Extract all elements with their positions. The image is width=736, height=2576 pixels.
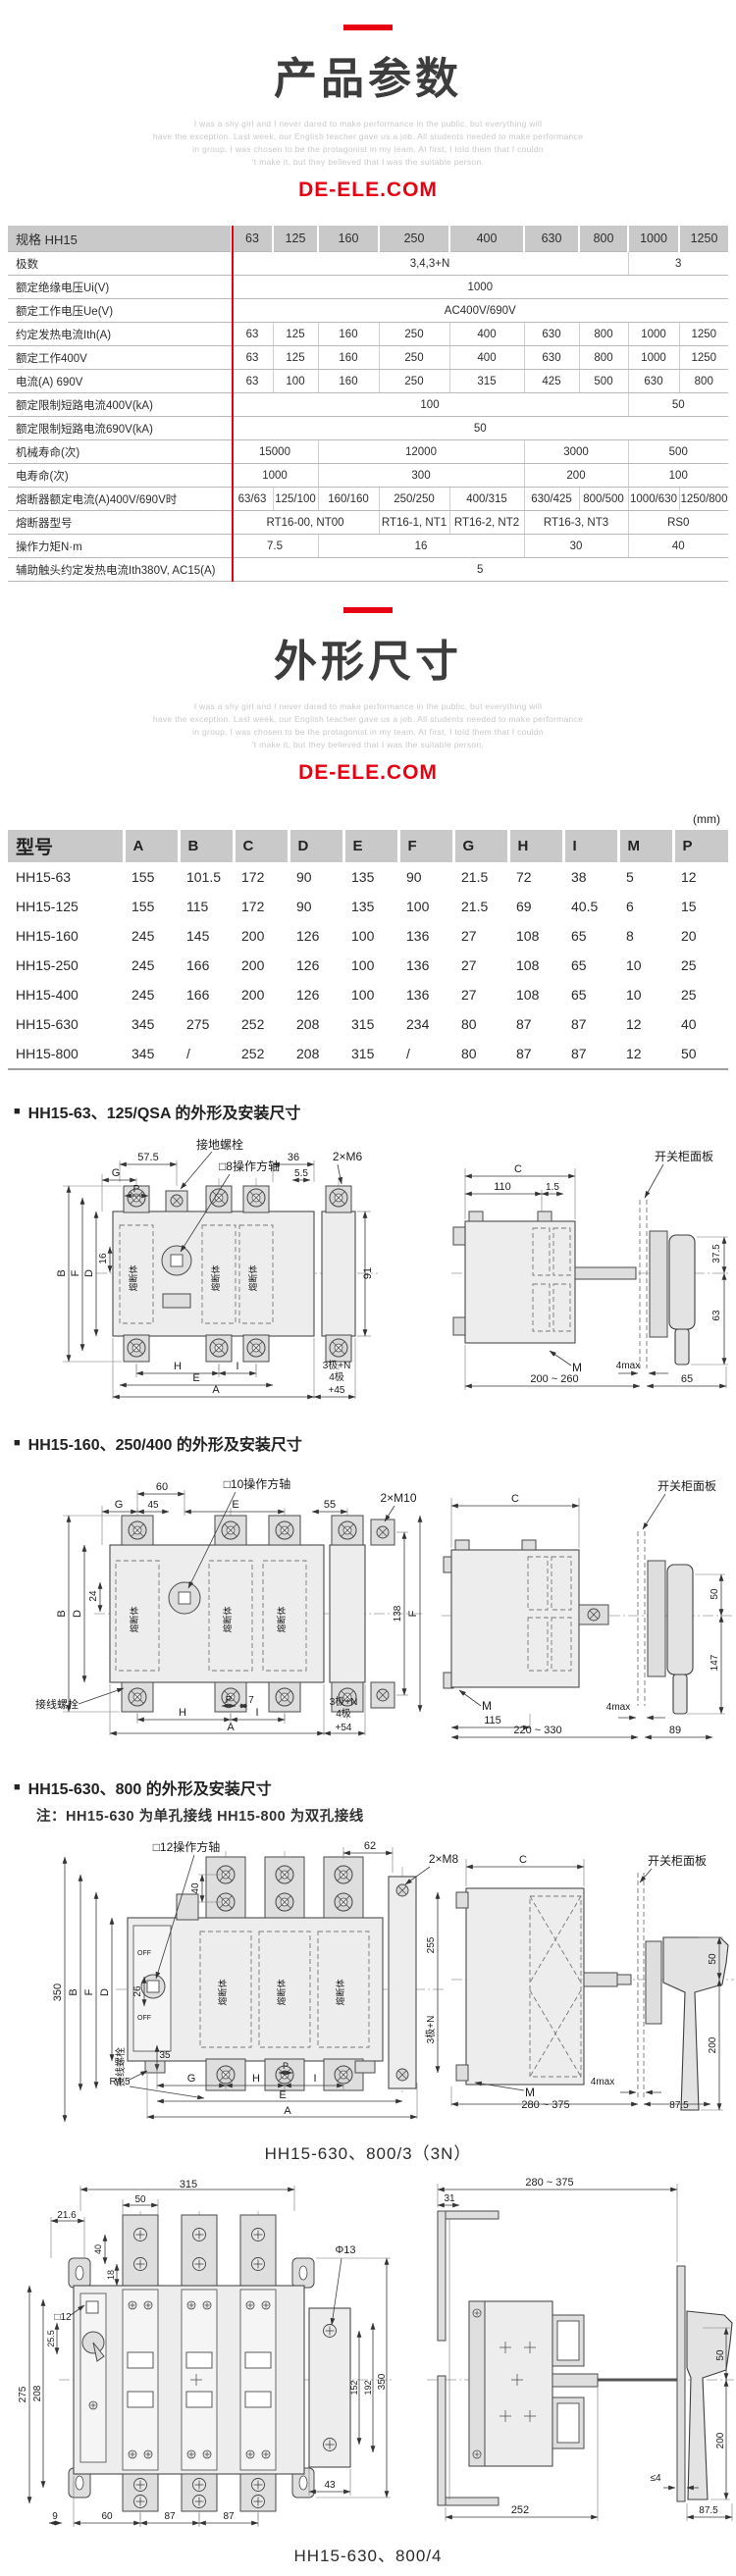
dim-value-cell: 10 [618,951,673,980]
dim-column-header: M [618,830,673,862]
dim-model-cell: HH15-250 [8,951,124,980]
dim-value-cell: 80 [453,1009,508,1039]
dim-value-cell: 126 [289,951,343,980]
dimension-label: E [192,1372,199,1384]
spec-value-cell: 200 [524,464,628,488]
spec-value-cell: 40 [628,535,728,558]
dim-value-cell: 20 [673,921,728,951]
dim-value-cell: 252 [234,1009,289,1039]
dim-value-cell: 90 [289,862,343,892]
dimension-label: F [70,1269,81,1276]
dimension-label: 62 [364,1840,376,1852]
dimension-label: 50 [134,2194,146,2205]
dimension-label: 接地螺栓 [196,1137,243,1152]
dim-value-cell: 69 [508,892,563,921]
drawing-title-1: HH15-63、125/QSA 的外形及安装尺寸 [28,1100,301,1123]
dim-value-cell: 100 [343,980,398,1009]
spec-value-cell: 1250/800 [679,488,728,511]
watermark-line: have the exception. Last week, our Engli… [0,130,736,143]
dim-value-cell: 10 [618,980,673,1009]
dim-column-header: B [179,830,234,862]
dim-value-cell: 21.5 [453,892,508,921]
dim-value-cell: 100 [343,921,398,951]
dimension-label: 45 [147,1500,159,1511]
spec-table-row: 电流(A) 690V63100160250315425500630800 [8,370,728,393]
dimension-label: H [252,2073,260,2085]
spec-value-cell: 425 [524,370,579,393]
dimension-label: D [99,1988,111,1996]
spec-value-cell: 800 [679,370,728,393]
spec-table-row: 操作力矩N·m7.5163040 [8,535,728,558]
dimension-label: 138 [393,1605,403,1622]
dimension-label: 接线螺栓 [35,1697,79,1711]
red-divider-line [232,226,234,582]
spec-value-cell: 1000 [232,464,318,488]
dim-value-cell: 136 [398,951,453,980]
dimension-label: 35 [159,2050,171,2061]
dim-value-cell: 200 [234,921,289,951]
dimension-label: 开关柜面板 [655,1150,713,1163]
dim-value-cell: 200 [234,980,289,1009]
spec-value-cell: 15000 [232,440,318,464]
spec-value-cell: 1000 [628,346,679,370]
dimension-label: F [407,1610,419,1617]
dim-value-cell: 27 [453,980,508,1009]
spec-value-cell: 16 [318,535,524,558]
dimension-label: 280 ~ 375 [521,2099,569,2111]
dimension-label: 315 [180,2179,197,2190]
spec-value-cell: 5 [232,558,728,582]
spec-table-row: 额定工作400V6312516025040063080010001250 [8,346,728,370]
dim-value-cell: 155 [124,862,179,892]
spec-value-cell: 250 [379,346,449,370]
dim-column-header: G [453,830,508,862]
bullet-icon: ■ [14,1438,21,1449]
dim-value-cell: 234 [398,1009,453,1039]
dim-model-cell: HH15-630 [8,1009,124,1039]
dimension-table: 型号ABCDEFGHIMP HH15-63155101.517290135902… [8,830,728,1070]
dimension-label: 7 [248,1695,254,1706]
dim-value-cell: 25 [673,980,728,1009]
dimension-label: C [519,1854,527,1866]
dimension-label: 192 [363,2380,373,2395]
spec-row-label: 规格 HH15 [8,226,232,252]
dimension-label: 开关柜面板 [657,1479,716,1493]
bullet-icon: ■ [14,1782,21,1793]
dimension-label: 350 [52,1984,64,2001]
dimension-label: E [279,2089,286,2101]
dimension-label: OFF [137,1950,151,1957]
dimension-label: 87.5 [699,2505,718,2516]
dim-value-cell: 65 [563,951,618,980]
dimension-label: 275 [18,2386,28,2402]
dimension-label: 87 [223,2511,235,2522]
table-row: HH15-63155101.5172901359021.57238512 [8,862,728,892]
dimension-label: 200 [715,2432,726,2448]
dimension-label: 21.6 [57,2210,77,2221]
dim-value-cell: 87 [508,1009,563,1039]
spec-value-cell: 1000 [628,323,679,346]
dimension-label: M [525,2086,535,2099]
spec-table-row: 额定绝缘电压Ui(V)1000 [8,276,728,299]
dim-value-cell: 25 [673,951,728,980]
dim-column-header: P [673,830,728,862]
dim-value-cell: 87 [563,1009,618,1039]
spec-value-cell: 63 [232,346,273,370]
spec-value-cell: 30 [524,535,628,558]
dim-column-header: H [508,830,563,862]
dimension-label: 147 [710,1654,720,1671]
dimension-label: +54 [336,1723,352,1733]
dim-value-cell: 90 [398,862,453,892]
dimension-label: 4极 [336,1707,351,1720]
watermark-text: I was a shy girl and I never dared to ma… [0,118,736,169]
spec-value-cell: 630 [524,226,579,252]
spec-value-cell: 250 [379,370,449,393]
dimension-label: 50 [715,2349,726,2361]
spec-value-cell: 160 [318,370,379,393]
dim-value-cell: 108 [508,921,563,951]
spec-row-label: 熔断器型号 [8,511,232,535]
spec-value-cell: 125 [273,346,318,370]
spec-row-label: 额定工作400V [8,346,232,370]
dim-value-cell: 172 [234,862,289,892]
dim-value-cell: 172 [234,892,289,921]
spec-row-label: 额定限制短路电流400V(kA) [8,393,232,417]
dim-value-cell: 100 [343,951,398,980]
dimension-label: 200 [708,2036,718,2053]
drawing-hh15-630-800-4: 3155021.6401827520825.5□12Φ1315219235043… [0,2176,736,2534]
spec-value-cell: 63 [232,323,273,346]
spec-value-cell: 160 [318,226,379,252]
spec-row-label: 额定工作电压Ue(V) [8,299,232,323]
bullet-icon: ■ [14,1107,21,1117]
dimension-label: C [511,1493,519,1505]
spec-row-label: 极数 [8,252,232,276]
dim-column-header: C [234,830,289,862]
spec-value-cell: 400 [449,346,524,370]
drawing-hh15-160-250-400: 60G45□10操作方轴E552×M10BD24138F熔断体熔断体熔断体接线螺… [0,1467,736,1746]
drawing-title-3: HH15-630、800 的外形及安装尺寸 [28,1776,272,1799]
dimension-label: 18 [106,2270,116,2280]
drawing-hh15-630-800-3n: □12操作方轴622×M840350BFD26接线螺栓35OFFOFF熔断体熔断… [0,1837,736,2132]
spec-value-cell: 300 [318,464,524,488]
spec-value-cell: 315 [449,370,524,393]
dimension-label: A [284,2105,291,2117]
spec-value-cell: 800 [579,346,628,370]
dim-value-cell: 108 [508,951,563,980]
dim-value-cell: 21.5 [453,862,508,892]
spec-value-cell: 160/160 [318,488,379,511]
spec-table-row: 规格 HH156312516025040063080010001250 [8,226,728,252]
spec-value-cell: 250/250 [379,488,449,511]
dim-value-cell: 315 [343,1009,398,1039]
dim-value-cell: 100 [398,892,453,921]
dim-value-cell: 345 [124,1009,179,1039]
dim-value-cell: / [179,1039,234,1069]
front-view [96,1178,378,1370]
spec-value-cell: AC400V/690V [232,299,728,323]
section-divider-bar [343,25,393,30]
operating-handle [669,1235,695,1329]
dimension-label: G [115,1499,124,1511]
spec-value-cell: 3,4,3+N [232,252,628,276]
drawing-title-2: HH15-160、250/400 的外形及安装尺寸 [28,1431,302,1455]
dimension-label: B [68,1988,79,1995]
spec-value-cell: 50 [628,393,728,417]
watermark-line: I was a shy girl and I never dared to ma… [0,700,736,713]
dimension-label: H [174,1361,182,1372]
dimension-label: P [226,1695,233,1706]
dim-value-cell: 208 [289,1009,343,1039]
dim-value-cell: 6 [618,892,673,921]
dim-value-cell: 136 [398,921,453,951]
dimension-label: D [83,1269,95,1277]
dimension-label: ≤4 [650,2473,660,2484]
dim-model-cell: HH15-125 [8,892,124,921]
dim-value-cell: 275 [179,1009,234,1039]
drive-shaft [575,1267,636,1279]
dim-value-cell: 155 [124,892,179,921]
dim-value-cell: / [398,1039,453,1069]
dimension-label: 200 ~ 260 [530,1373,578,1385]
watermark-line: have the exception. Last week, our Engli… [0,713,736,726]
dimension-label: 50 [710,1588,720,1600]
dimension-label: B [56,1610,68,1617]
dimension-label: 40 [190,1882,201,1894]
dimension-label: 4max [591,2077,614,2087]
dim-value-cell: 40.5 [563,892,618,921]
spec-value-cell: 630 [524,323,579,346]
spec-value-cell: 125/100 [273,488,318,511]
dimension-label: 熔断体 [210,1264,221,1291]
dim-value-cell: 252 [234,1039,289,1069]
spec-value-cell: 1250 [679,323,728,346]
dimension-label: 熔断体 [276,1606,287,1632]
dimension-label: 4max [616,1361,640,1371]
spec-value-cell: 125 [273,226,318,252]
table-row: HH15-25024516620012610013627108651025 [8,951,728,980]
spec-value-cell: 800/500 [579,488,628,511]
drawing-caption-3n: HH15-630、800/3（3N） [0,2139,736,2164]
dim-value-cell: 315 [343,1039,398,1069]
dim-value-cell: 115 [179,892,234,921]
spec-table-wrap: 规格 HH156312516025040063080010001250极数3,4… [8,226,728,582]
spec-table-row: 额定限制短路电流690V(kA)50 [8,417,728,440]
dimension-label: Φ13 [335,2244,355,2256]
dim-value-cell: 87 [563,1039,618,1069]
dim-value-cell: 145 [179,921,234,951]
dimension-label: 熔断体 [247,1264,258,1291]
watermark-line: I was a shy girl and I never dared to ma… [0,118,736,130]
spec-value-cell: 1250 [679,226,728,252]
dimension-label: 16 [98,1253,109,1264]
dimension-label: G [187,2073,196,2085]
dimension-label: 熔断体 [276,1979,287,2005]
section-outline-dimensions: 外形尺寸 I was a shy girl and I never dared … [0,607,736,2566]
spec-value-cell: RS0 [628,511,728,535]
dim-value-cell: 136 [398,980,453,1009]
drawing-caption-4: HH15-630、800/4 [0,2542,736,2566]
side-view [427,2211,734,2505]
dimension-label: H [179,1707,186,1719]
spec-value-cell: 1000 [628,226,679,252]
spec-row-label: 熔断器额定电流(A)400V/690V时 [8,488,232,511]
dimension-label: M [572,1361,582,1374]
dim-value-cell: 40 [673,1009,728,1039]
dim-value-cell: 126 [289,980,343,1009]
dim-value-cell: 15 [673,892,728,921]
side-view [451,1873,734,2110]
dim-value-cell: 345 [124,1039,179,1069]
spec-value-cell: RT16-00, NT00 [232,511,379,535]
dimension-label: 2×M10 [380,1491,416,1505]
spec-table-row: 额定工作电压Ue(V)AC400V/690V [8,299,728,323]
dimension-label: 5.5 [294,1168,308,1179]
spec-table-row: 极数3,4,3+N3 [8,252,728,276]
dimension-label: 开关柜面板 [648,1854,707,1868]
dimension-label: 26 [132,1985,143,1997]
spec-value-cell: 100 [273,370,318,393]
dim-column-header: E [343,830,398,862]
spec-value-cell: 250 [379,226,449,252]
dimension-label: 熔断体 [335,1979,345,2005]
spec-value-cell: 1250 [679,346,728,370]
dimension-label: 4max [606,1702,630,1713]
drawing-heading-1: ■ HH15-63、125/QSA 的外形及安装尺寸 [14,1100,736,1123]
dimension-label: 熔断体 [217,1979,228,2005]
dimension-label: □12操作方轴 [153,1839,221,1854]
spec-value-cell: 630 [524,346,579,370]
dim-value-cell: 101.5 [179,862,234,892]
dimension-label: 2×M8 [429,1852,459,1866]
dim-column-header: F [398,830,453,862]
dimension-label: 152 [349,2380,359,2395]
dimension-label: 熔断体 [128,1264,138,1291]
cabinet-panel [677,2266,685,2501]
dimension-label: G [112,1167,121,1179]
dim-value-cell: 5 [618,862,673,892]
dim-column-header: D [289,830,343,862]
spec-table-row: 熔断器额定电流(A)400V/690V时63/63125/100160/1602… [8,488,728,511]
spec-value-cell: 160 [318,346,379,370]
dimension-label: I [313,2073,316,2085]
dimension-label: 255 [426,1936,437,1953]
dim-value-cell: 38 [563,862,618,892]
spec-value-cell: 400 [449,323,524,346]
dim-column-header: 型号 [8,830,124,862]
spec-row-label: 辅助触头约定发热电流Ith380V, AC15(A) [8,558,232,582]
dimension-label: 208 [32,2385,43,2401]
watermark-line: 't make it, but they believed that I was… [0,739,736,751]
product-spec-page: 产品参数 I was a shy girl and I never dared … [0,0,736,2576]
dimension-label: A [212,1384,220,1396]
dimension-label: 60 [101,2511,113,2522]
dim-value-cell: 65 [563,980,618,1009]
dim-value-cell: 200 [234,951,289,980]
drawing-heading-3: ■ HH15-630、800 的外形及安装尺寸 [14,1776,736,1799]
dimension-label: 91 [362,1267,374,1279]
spec-value-cell: 800 [579,226,628,252]
spec-value-cell: 400/315 [449,488,524,511]
dimension-label: I [236,1361,238,1372]
table-row: HH15-800345/252208315/8087871250 [8,1039,728,1069]
dimension-label: 熔断体 [129,1606,139,1632]
spec-row-label: 额定绝缘电压Ui(V) [8,276,232,299]
spec-value-cell: 63/63 [232,488,273,511]
dimension-label: 87 [164,2511,176,2522]
spec-value-cell: 100 [232,393,628,417]
section-divider-bar [343,607,393,613]
watermark-line: in group. I was chosen to be the protago… [0,143,736,156]
dim-value-cell: 166 [179,980,234,1009]
spec-row-label: 操作力矩N·m [8,535,232,558]
dim-value-cell: 135 [343,862,398,892]
front-view [94,1508,422,1720]
dim-value-cell: 27 [453,921,508,951]
dim-model-cell: HH15-160 [8,921,124,951]
table-row: HH15-1251551151729013510021.56940.5615 [8,892,728,921]
spec-value-cell: RT16-2, NT2 [449,511,524,535]
dim-value-cell: 87 [508,1039,563,1069]
dimension-label: 350 [377,2373,388,2390]
unit-note: (mm) [0,812,720,826]
dimension-label: 110 [494,1181,511,1193]
dimension-label: 50 [708,1953,718,1965]
spec-table-row: 电寿命(次)1000300200100 [8,464,728,488]
spec-table-row: 约定发热电流Ith(A)6312516025040063080010001250 [8,323,728,346]
dim-value-cell: 126 [289,921,343,951]
spec-row-label: 机械寿命(次) [8,440,232,464]
dim-value-cell: 166 [179,951,234,980]
dimension-label: 熔断体 [222,1606,233,1632]
dimension-label: E [232,1499,238,1511]
spec-value-cell: 7.5 [232,535,318,558]
drawing-heading-2: ■ HH15-160、250/400 的外形及安装尺寸 [14,1431,736,1455]
dim-value-cell: 245 [124,921,179,951]
dim-header-row: 型号ABCDEFGHIMP [8,830,728,862]
dim-model-cell: HH15-400 [8,980,124,1009]
spec-table-row: 额定限制短路电流400V(kA)10050 [8,393,728,417]
dimension-label: 252 [511,2504,529,2516]
drive-shaft [584,1973,617,1986]
spec-value-cell: 63 [232,370,273,393]
drawing-note: 注：HH15-630 为单孔接线 HH15-800 为双孔接线 [36,1805,736,1826]
spec-value-cell: RT16-3, NT3 [524,511,628,535]
spec-table-row: 熔断器型号RT16-00, NT00RT16-1, NT1RT16-2, NT2… [8,511,728,535]
table-row: HH15-6303452752522083152348087871240 [8,1009,728,1039]
dimension-label: 89 [669,1725,681,1736]
dim-value-cell: 245 [124,980,179,1009]
dim-value-cell: 8 [618,921,673,951]
section-product-parameters: 产品参数 I was a shy girl and I never dared … [0,25,736,582]
dimension-label: 36 [288,1152,299,1163]
spec-value-cell: 1000/630 [628,488,679,511]
dimension-label: C [514,1163,522,1175]
dimension-label: P [283,2061,289,2071]
dimension-label: +45 [329,1385,345,1396]
dimension-label: 31 [444,2193,455,2204]
dim-column-header: A [124,830,179,862]
spec-value-cell: 63 [232,226,273,252]
operating-handle [667,1565,693,1674]
watermark-line: in group. I was chosen to be the protago… [0,726,736,739]
dimension-label: 65 [681,1373,693,1385]
table-row: HH15-40024516620012610013627108651025 [8,980,728,1009]
dimension-label: 3极+N [424,2016,437,2044]
dim-value-cell: 12 [618,1039,673,1069]
dimension-label: □8操作方轴 [219,1159,280,1173]
